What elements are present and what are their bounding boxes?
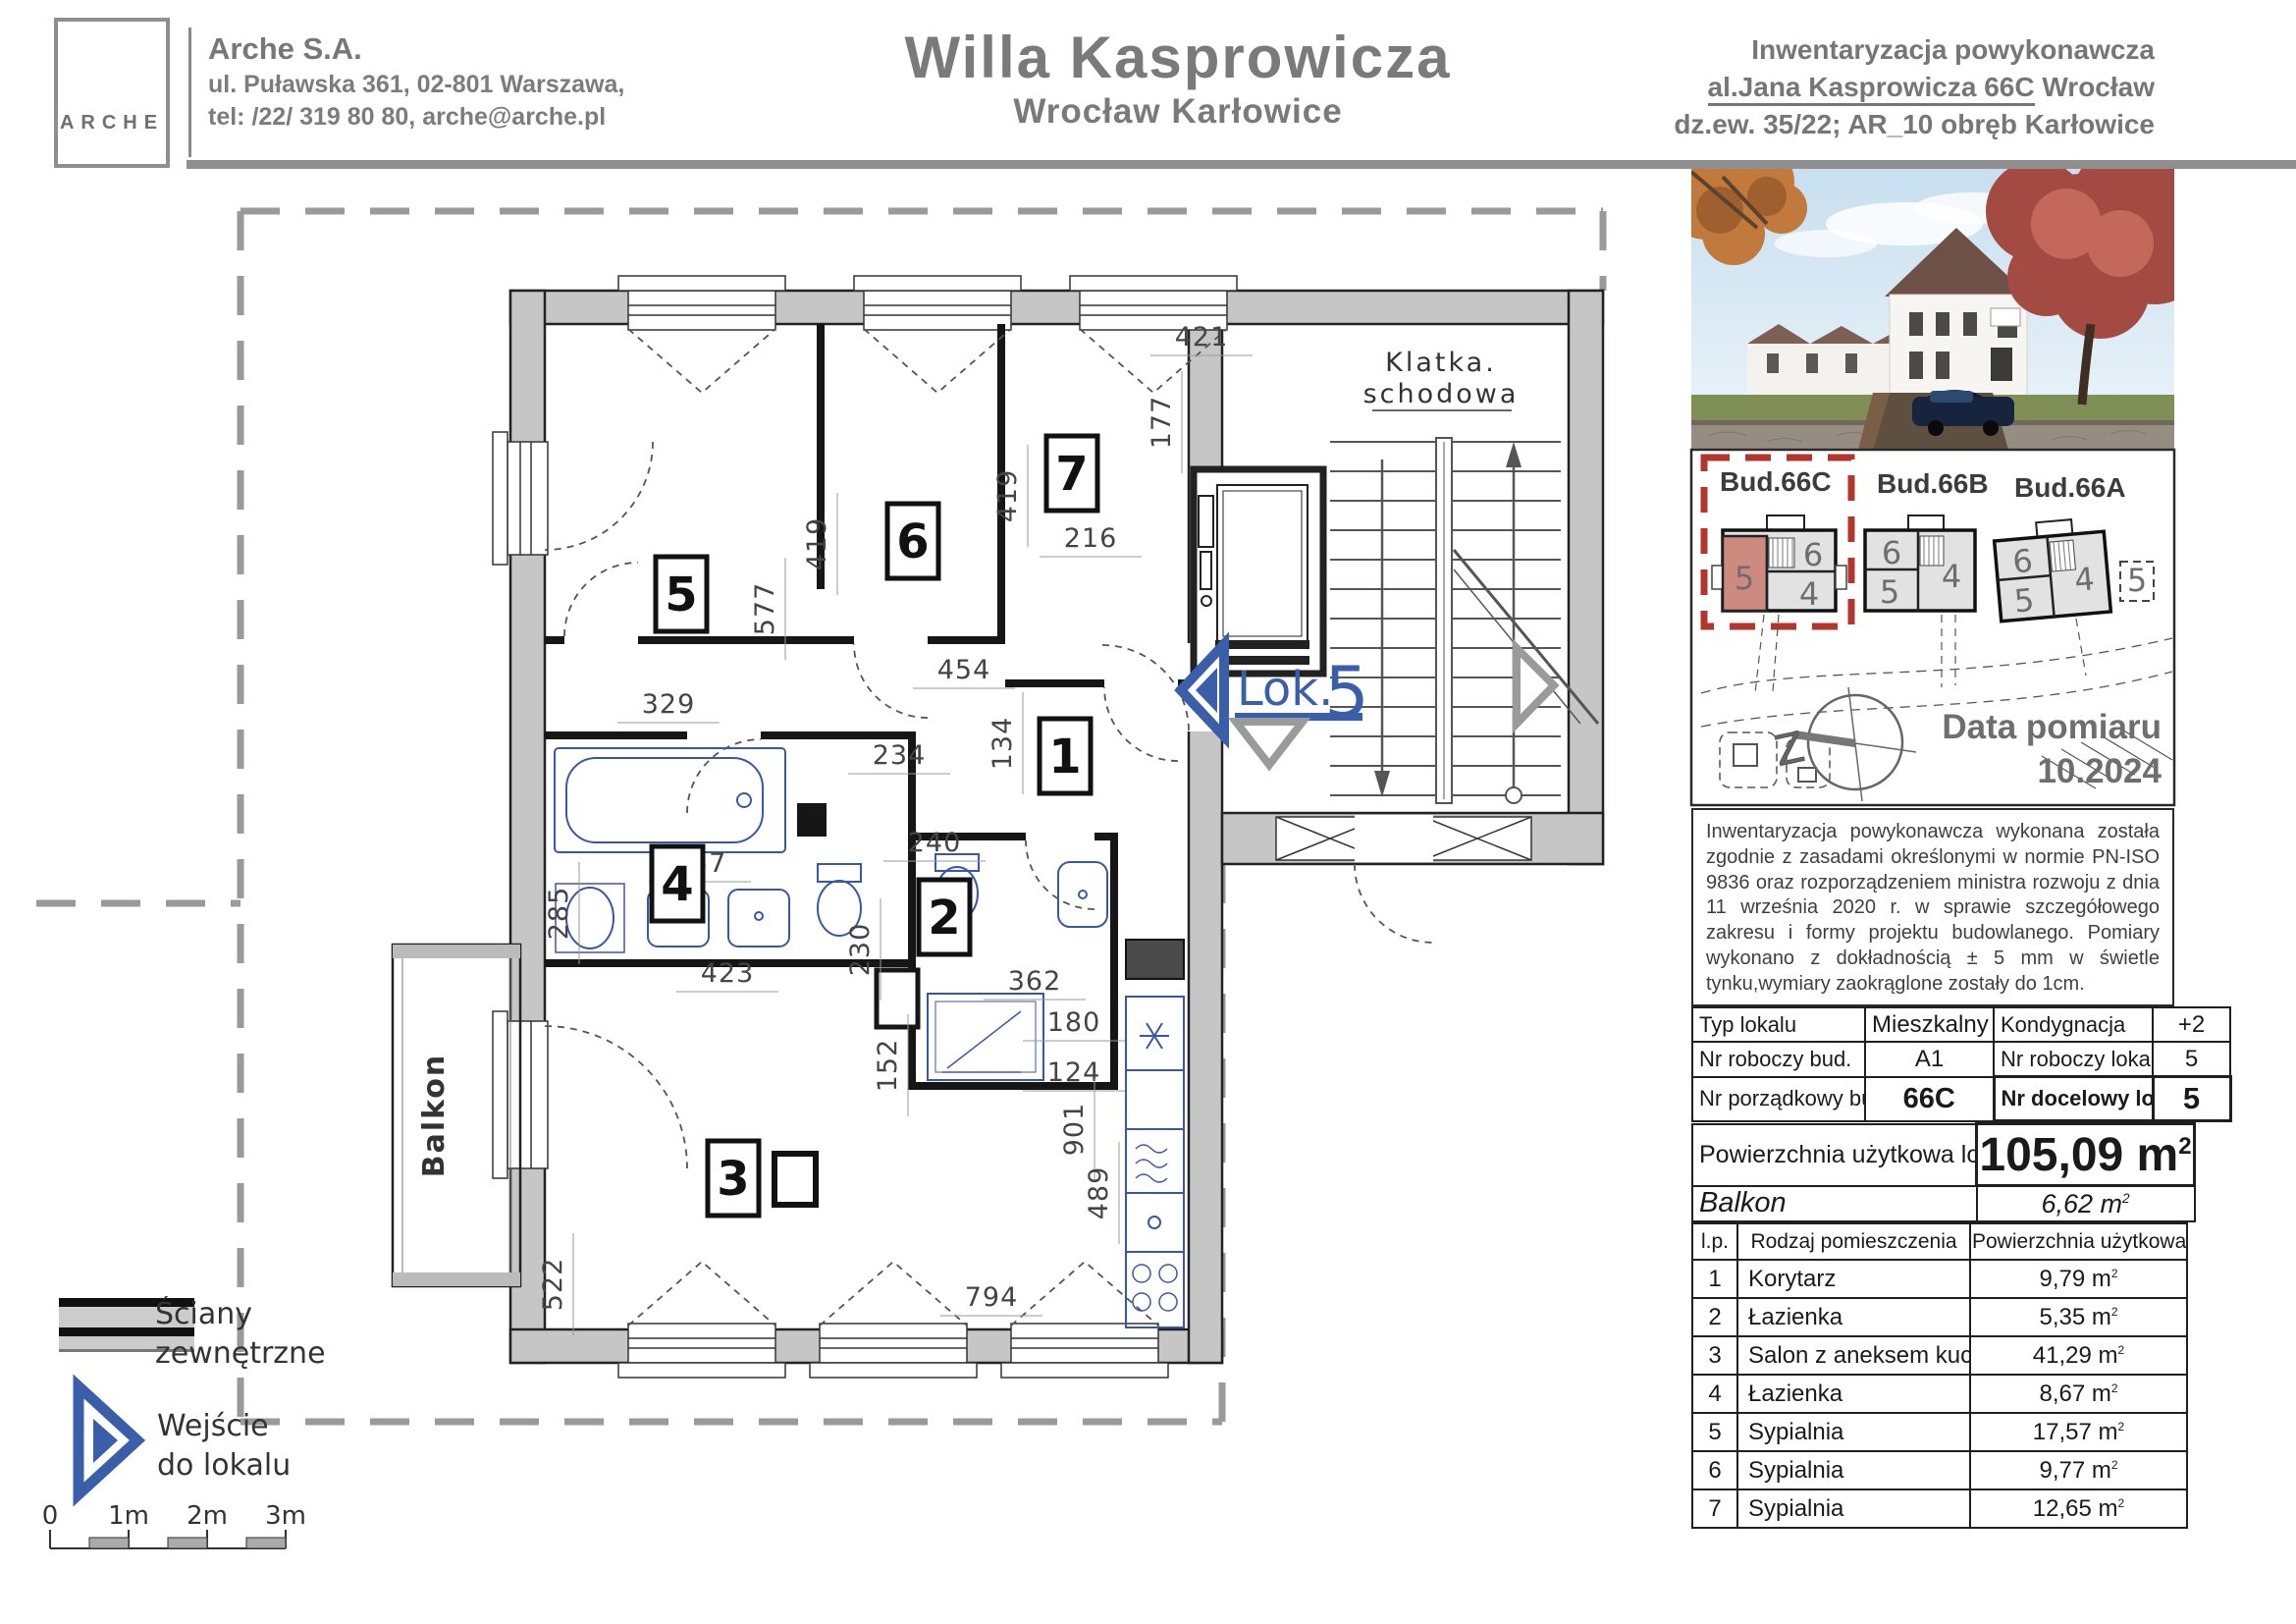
info-row: Typ lokaluMieszkalnyKondygnacja+2: [1692, 1007, 2230, 1042]
unit-label: Lok.: [1237, 662, 1333, 717]
room-cell: 12,65 m2: [1970, 1489, 2187, 1528]
dimension-label: 901: [1059, 1103, 1090, 1157]
building-label: Bud.66C: [1720, 466, 1832, 497]
col-header-lp: l.p.: [1692, 1223, 1737, 1260]
room-row: 4Łazienka8,67 m2: [1692, 1375, 2187, 1413]
balcony-area-value: 6,62 m2: [1977, 1186, 2195, 1222]
unit-data-tables: Typ lokaluMieszkalnyKondygnacja+2Nr robo…: [1691, 1006, 2174, 1529]
title-block: Willa Kasprowicza Wrocław Karłowice: [687, 26, 1669, 134]
room-cell: 1: [1692, 1260, 1737, 1298]
scale-tick: 3m: [265, 1501, 306, 1531]
room-cell: Korytarz: [1737, 1260, 1970, 1298]
dimension-label: 329: [642, 689, 696, 720]
svg-text:5: 5: [1880, 573, 1899, 611]
info-cell: Nr roboczy lokalu: [1994, 1042, 2153, 1077]
room-row: 2Łazienka5,35 m2: [1692, 1298, 2187, 1336]
svg-text:5: 5: [1735, 560, 1754, 597]
legal-note-text: Inwentaryzacja powykonawcza wykonana zos…: [1706, 821, 2160, 995]
dimension-label: 285: [544, 887, 574, 941]
room-cell: Sypialnia: [1737, 1489, 1970, 1528]
dimension-label: 180: [1047, 1007, 1101, 1038]
room-cell: 7: [1692, 1489, 1737, 1528]
room-row: 7Sypialnia12,65 m2: [1692, 1489, 2187, 1528]
room-cell: Łazienka: [1737, 1375, 1970, 1413]
building-key-diagrams: Bud.66C 5 6 4 Bud.66B 6 5 4 Bud: [1704, 458, 2154, 626]
svg-text:5: 5: [2012, 581, 2036, 621]
room-cell: 17,57 m2: [1970, 1413, 2187, 1451]
kitchen-counter: [1126, 997, 1184, 1327]
dimension-label: 124: [1047, 1057, 1101, 1088]
room-cell: 3: [1692, 1336, 1737, 1375]
usable-area-row: Powierzchnia użytkowa lokalu 105,09 m2: [1692, 1124, 2195, 1186]
info-cell: Typ lokalu: [1692, 1007, 1865, 1042]
other-entrance-arrow-icon: [1517, 648, 1554, 724]
inventory-address: al.Jana Kasprowicza 66C Wrocław: [1674, 69, 2155, 106]
info-cell: 5: [2153, 1042, 2230, 1077]
svg-text:6: 6: [2011, 542, 2035, 581]
inventory-info-block: Inwentaryzacja powykonawcza al.Jana Kasp…: [1674, 31, 2155, 143]
legend-entrance-label: Wejście: [157, 1409, 269, 1443]
page-subtitle: Wrocław Karłowice: [687, 90, 1669, 134]
legend-walls-label: zewnętrzne: [155, 1336, 326, 1371]
building-66b-footprint: 6 5 4: [1865, 515, 1975, 611]
room-number: 2: [928, 891, 960, 946]
measurement-date: Data pomiaru 10.2024: [1895, 705, 2162, 793]
legend-entrance-label: do lokalu: [157, 1448, 291, 1483]
room-cell: 5: [1692, 1413, 1737, 1451]
building-66c-footprint: 5 6 4: [1712, 515, 1846, 613]
info-cell: Kondygnacja: [1994, 1007, 2153, 1042]
dimension-label: 522: [538, 1258, 568, 1312]
scale-tick: 2m: [187, 1501, 228, 1531]
svg-text:4: 4: [1799, 575, 1819, 613]
rooms-table-header: l.p. Rodzaj pomieszczenia Powierzchnia u…: [1692, 1223, 2187, 1260]
inventory-sheet: Klatka. schodowa Lok. 5 Balkon 421177419…: [0, 0, 2296, 1624]
page-title: Willa Kasprowicza: [687, 26, 1669, 90]
dimension-label: 423: [701, 958, 755, 989]
room-row: 6Sypialnia9,77 m2: [1692, 1451, 2187, 1489]
room-cell: Salon z aneksem kuchen.: [1737, 1336, 1970, 1375]
room-number-boxes: 1234567: [652, 436, 1097, 1216]
info-cell: Mieszkalny: [1865, 1007, 1994, 1042]
svg-text:Klatka.: Klatka.: [1385, 348, 1497, 378]
room-cell: Łazienka: [1737, 1298, 1970, 1336]
dimension-label: 240: [908, 828, 962, 858]
room-cell: 2: [1692, 1298, 1737, 1336]
fixtures: [555, 748, 1184, 1327]
legend-walls-label: Ściany: [155, 1295, 252, 1331]
room-cell: 8,67 m2: [1970, 1375, 2187, 1413]
header-divider: [188, 27, 191, 157]
company-name: Arche S.A.: [208, 29, 624, 69]
building-photo: [1663, 144, 2209, 450]
dimension-label: 230: [845, 923, 876, 977]
usable-area-value: 105,09 m2: [1977, 1124, 2195, 1186]
dimension-label: 216: [1064, 523, 1118, 554]
dimension-label: 577: [750, 582, 780, 636]
unit-number: 5: [1324, 651, 1369, 733]
balcony-area-label: Balkon: [1692, 1186, 1977, 1222]
dimension-label: 362: [1008, 966, 1062, 997]
room-cell: Sypialnia: [1737, 1413, 1970, 1451]
elevator: [1194, 469, 1323, 674]
scale-tick: 1m: [108, 1501, 149, 1531]
stair-windows: [1276, 815, 1531, 862]
sink-icon: [1058, 862, 1107, 927]
info-row: Nr roboczy bud.A1Nr roboczy lokalu5: [1692, 1042, 2230, 1077]
dimension-label: 794: [965, 1282, 1019, 1313]
sink-icon: [728, 890, 789, 947]
room-number: 7: [1055, 447, 1088, 502]
rooms-table: l.p. Rodzaj pomieszczenia Powierzchnia u…: [1691, 1222, 2188, 1529]
other-entrance-arrow-icon: [1236, 722, 1303, 765]
company-phone: tel: /22/ 319 80 80, arche@arche.pl: [208, 101, 624, 134]
unit-info-table: Typ lokaluMieszkalnyKondygnacja+2Nr robo…: [1691, 1006, 2232, 1122]
info-cell: 66C: [1865, 1077, 1994, 1121]
dimension-label: 234: [873, 740, 927, 771]
dimension-labels: 4211774195774192162344543293572852402301…: [538, 322, 1253, 1335]
bathtub-icon: [555, 748, 785, 852]
building-label: Bud.66A: [2014, 472, 2126, 503]
col-header-room-type: Rodzaj pomieszczenia: [1737, 1223, 1970, 1260]
inventory-plot: dz.ew. 35/22; AR_10 obręb Karłowice: [1674, 106, 2155, 143]
room-row: 3Salon z aneksem kuchen.41,29 m2: [1692, 1336, 2187, 1375]
stairwell-label: Klatka. schodowa: [1363, 348, 1520, 410]
measurement-date-label: Data pomiaru: [1895, 705, 2162, 749]
legend: Ściany zewnętrzne Wejście do lokalu 0 1m…: [42, 1295, 326, 1548]
svg-text:4: 4: [1942, 558, 1961, 595]
info-cell: A1: [1865, 1042, 1994, 1077]
inventory-type: Inwentaryzacja powykonawcza: [1674, 31, 2155, 69]
room-cell: 9,79 m2: [1970, 1260, 2187, 1298]
info-row: Nr porządkowy bud.66CNr docelowy lokalu5: [1692, 1077, 2230, 1121]
scale-tick: 0: [42, 1501, 59, 1531]
building-label: Bud.66B: [1877, 468, 1989, 499]
balcony-area-row: Balkon 6,62 m2: [1692, 1186, 2195, 1222]
dimension-label: 489: [1084, 1166, 1114, 1220]
company-block: Arche S.A. ul. Puławska 361, 02-801 Wars…: [208, 29, 624, 134]
svg-text:schodowa: schodowa: [1363, 379, 1520, 409]
dimension-label: 177: [1147, 396, 1177, 450]
dimension-label: 419: [992, 469, 1023, 523]
room-number: 3: [717, 1152, 749, 1207]
dimension-label: 134: [988, 717, 1018, 771]
room-row: 1Korytarz9,79 m2: [1692, 1260, 2187, 1298]
staircase: [1330, 438, 1598, 803]
room-number: 5: [665, 568, 697, 623]
balcony-door-room5: [493, 432, 548, 565]
info-cell: 5: [2153, 1077, 2230, 1121]
info-cell: Nr porządkowy bud.: [1692, 1077, 1865, 1121]
info-cell: +2: [2153, 1007, 2230, 1042]
dimension-label: 454: [937, 655, 991, 685]
dimension-label: 421: [1175, 322, 1229, 352]
company-address: ul. Puławska 361, 02-801 Warszawa,: [208, 69, 624, 101]
room-cell: 5,35 m2: [1970, 1298, 2187, 1336]
info-cell: Nr roboczy bud.: [1692, 1042, 1865, 1077]
shower-icon: [928, 994, 1043, 1080]
col-header-area: Powierzchnia użytkowa: [1970, 1223, 2187, 1260]
room-row: 5Sypialnia17,57 m2: [1692, 1413, 2187, 1451]
room-cell: 6: [1692, 1451, 1737, 1489]
room-cell: 41,29 m2: [1970, 1336, 2187, 1375]
measurement-date-value: 10.2024: [1895, 749, 2162, 793]
legal-note: Inwentaryzacja powykonawcza wykonana zos…: [1691, 808, 2174, 1006]
info-cell: Nr docelowy lokalu: [1994, 1077, 2153, 1121]
header-rule: [187, 160, 2296, 169]
balcony-label: Balkon: [417, 1054, 452, 1178]
usable-area-label: Powierzchnia użytkowa lokalu: [1692, 1124, 1977, 1186]
arche-logo: ARCHE: [54, 18, 170, 168]
room-cell: 9,77 m2: [1970, 1451, 2187, 1489]
dimension-label: 419: [802, 517, 832, 571]
unit-entrance-marker: Lok. 5: [1181, 644, 1554, 765]
room-number: 4: [661, 857, 693, 912]
scale-bar: [50, 1530, 286, 1548]
room-cell: 4: [1692, 1375, 1737, 1413]
arche-logo-text: ARCHE: [58, 112, 166, 135]
room-number: 6: [896, 514, 929, 569]
svg-text:6: 6: [1803, 536, 1823, 573]
site-marker: 5: [2127, 562, 2147, 599]
area-table: Powierzchnia użytkowa lokalu 105,09 m2 B…: [1691, 1122, 2196, 1222]
room-cell: Sypialnia: [1737, 1451, 1970, 1489]
svg-text:6: 6: [1882, 534, 1901, 571]
svg-text:4: 4: [2073, 560, 2097, 599]
room-number: 1: [1048, 730, 1081, 785]
dimension-label: 152: [873, 1039, 903, 1093]
